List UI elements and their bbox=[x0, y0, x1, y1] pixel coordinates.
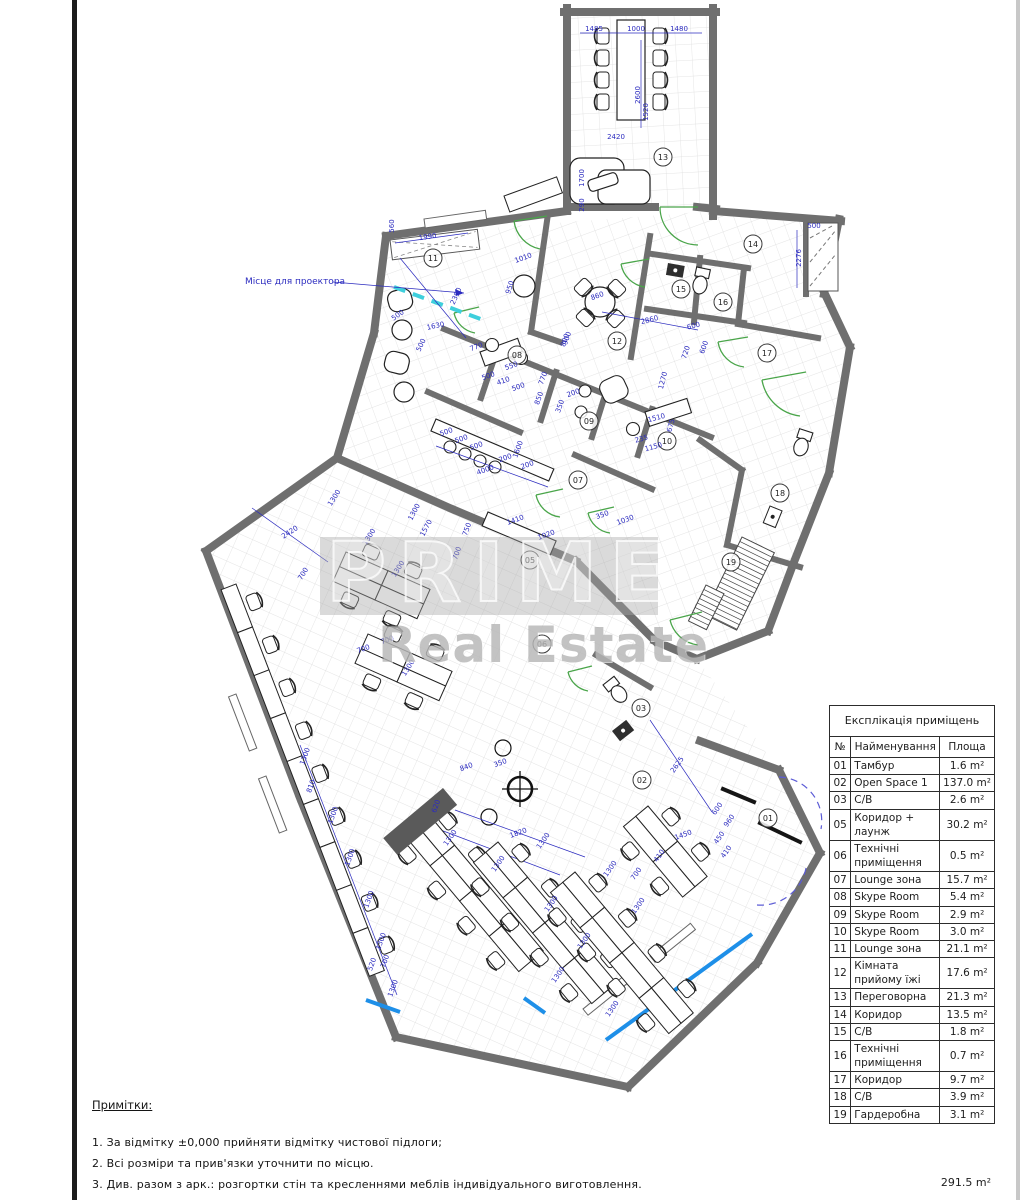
svg-text:08: 08 bbox=[512, 351, 522, 360]
cell-area: 15.7 m² bbox=[940, 872, 995, 889]
cell-no: 10 bbox=[830, 923, 851, 940]
svg-text:18: 18 bbox=[775, 489, 785, 498]
svg-text:11: 11 bbox=[428, 254, 438, 263]
shaft-hatch bbox=[808, 223, 838, 291]
dimension-label: 1480 bbox=[670, 25, 688, 33]
room-number-bubble: 12 bbox=[608, 332, 626, 350]
svg-text:02: 02 bbox=[637, 776, 647, 785]
svg-text:05: 05 bbox=[525, 556, 535, 565]
table-row: 10Skype Room3.0 m² bbox=[830, 923, 995, 940]
cell-area: 1.6 m² bbox=[940, 758, 995, 775]
cell-area: 21.1 m² bbox=[940, 940, 995, 957]
legend-header-no: № bbox=[830, 737, 851, 758]
room-number-bubble: 03 bbox=[632, 699, 650, 717]
table-row: 13Переговорна21.3 m² bbox=[830, 989, 995, 1006]
cell-no: 07 bbox=[830, 872, 851, 889]
room-number-bubble: 17 bbox=[758, 344, 776, 362]
dimension-label: 2600 bbox=[634, 86, 642, 104]
cell-area: 0.7 m² bbox=[940, 1040, 995, 1071]
table-row: 19Гардеробна3.1 m² bbox=[830, 1106, 995, 1123]
cell-name: Lounge зона bbox=[851, 872, 940, 889]
cell-no: 15 bbox=[830, 1023, 851, 1040]
svg-text:09: 09 bbox=[584, 417, 594, 426]
cell-no: 11 bbox=[830, 940, 851, 957]
room-number-bubble: 16 bbox=[714, 293, 732, 311]
svg-text:16: 16 bbox=[718, 298, 728, 307]
legend-header-area: Площа bbox=[940, 737, 995, 758]
cell-no: 17 bbox=[830, 1072, 851, 1089]
cell-area: 13.5 m² bbox=[940, 1006, 995, 1023]
dimension-label: 290 bbox=[578, 198, 586, 211]
notes-title: Примітки: bbox=[92, 1098, 652, 1112]
dimension-label: 2420 bbox=[607, 133, 625, 141]
table-row: 14Коридор13.5 m² bbox=[830, 1006, 995, 1023]
cell-area: 3.1 m² bbox=[940, 1106, 995, 1123]
table-row: 16Технічні приміщення0.7 m² bbox=[830, 1040, 995, 1071]
cell-name: С/В bbox=[851, 1023, 940, 1040]
table-row: 11Lounge зона21.1 m² bbox=[830, 940, 995, 957]
cell-no: 01 bbox=[830, 758, 851, 775]
cell-no: 09 bbox=[830, 906, 851, 923]
cell-no: 18 bbox=[830, 1089, 851, 1106]
svg-text:13: 13 bbox=[658, 153, 668, 162]
dimension-label: 500 bbox=[807, 222, 820, 230]
svg-text:19: 19 bbox=[726, 558, 736, 567]
cell-area: 9.7 m² bbox=[940, 1072, 995, 1089]
cell-name: Гардеробна bbox=[851, 1106, 940, 1123]
table-row: 12Кімната прийому їжі17.6 m² bbox=[830, 958, 995, 989]
cell-area: 3.0 m² bbox=[940, 923, 995, 940]
table-row: 01Тамбур1.6 m² bbox=[830, 758, 995, 775]
notes-block: Примітки: 1. За відмітку ±0,000 прийняти… bbox=[92, 1098, 652, 1199]
cell-no: 13 bbox=[830, 989, 851, 1006]
cell-name: С/В bbox=[851, 1089, 940, 1106]
room-legend-table: Експлікація приміщень № Найменування Пло… bbox=[829, 705, 995, 1124]
cell-name: Коридор bbox=[851, 1072, 940, 1089]
table-row: 07Lounge зона15.7 m² bbox=[830, 872, 995, 889]
cell-name: Переговорна bbox=[851, 989, 940, 1006]
note-item: 1. За відмітку ±0,000 прийняти відмітку … bbox=[92, 1136, 652, 1149]
legend-title: Експлікація приміщень bbox=[830, 706, 995, 737]
svg-text:17: 17 bbox=[762, 349, 772, 358]
cell-area: 3.9 m² bbox=[940, 1089, 995, 1106]
room-number-bubble: 01 bbox=[759, 809, 777, 827]
cell-area: 0.5 m² bbox=[940, 840, 995, 871]
cell-name: Коридор bbox=[851, 1006, 940, 1023]
cell-name: Open Space 1 bbox=[851, 775, 940, 792]
cell-no: 05 bbox=[830, 809, 851, 840]
room-number-bubble: 18 bbox=[771, 484, 789, 502]
dimension-label: 560 bbox=[388, 219, 396, 232]
room-number-bubble: 09 bbox=[580, 412, 598, 430]
cell-name: Skype Room bbox=[851, 906, 940, 923]
table-row: 15С/В1.8 m² bbox=[830, 1023, 995, 1040]
cell-name: Skype Room bbox=[851, 923, 940, 940]
svg-text:14: 14 bbox=[748, 240, 758, 249]
note-item: 3. Див. разом з арк.: розгортки стін та … bbox=[92, 1178, 652, 1191]
cell-name: С/В bbox=[851, 792, 940, 809]
room-number-bubble: 14 bbox=[744, 235, 762, 253]
room-number-bubble: 07 bbox=[569, 471, 587, 489]
cell-area: 2.6 m² bbox=[940, 792, 995, 809]
room-number-bubble: 13 bbox=[654, 148, 672, 166]
cell-no: 08 bbox=[830, 889, 851, 906]
svg-text:07: 07 bbox=[573, 476, 583, 485]
projector-label: Місце для проектора bbox=[245, 277, 345, 287]
cell-no: 12 bbox=[830, 958, 851, 989]
cell-no: 03 bbox=[830, 792, 851, 809]
cell-area: 5.4 m² bbox=[940, 889, 995, 906]
cell-area: 137.0 m² bbox=[940, 775, 995, 792]
table-row: 08Skype Room5.4 m² bbox=[830, 889, 995, 906]
svg-text:10: 10 bbox=[662, 437, 672, 446]
cell-name: Тамбур bbox=[851, 758, 940, 775]
cell-name: Коридор + лаунж bbox=[851, 809, 940, 840]
room-number-bubble: 15 bbox=[672, 280, 690, 298]
table-row: 09Skype Room2.9 m² bbox=[830, 906, 995, 923]
cell-name: Skype Room bbox=[851, 889, 940, 906]
svg-text:01: 01 bbox=[763, 814, 773, 823]
cell-name: Технічні приміщення bbox=[851, 1040, 940, 1071]
dimension-label: 2276 bbox=[795, 249, 803, 267]
svg-text:12: 12 bbox=[612, 337, 622, 346]
cell-area: 17.6 m² bbox=[940, 958, 995, 989]
total-area: 291.5 m² bbox=[829, 1176, 991, 1189]
cell-no: 14 bbox=[830, 1006, 851, 1023]
cell-area: 21.3 m² bbox=[940, 989, 995, 1006]
cell-name: Кімната прийому їжі bbox=[851, 958, 940, 989]
cell-area: 30.2 m² bbox=[940, 809, 995, 840]
room-number-bubble: 02 bbox=[633, 771, 651, 789]
legend-header-name: Найменування bbox=[851, 737, 940, 758]
cell-no: 02 bbox=[830, 775, 851, 792]
table-row: 03С/В2.6 m² bbox=[830, 792, 995, 809]
svg-text:06: 06 bbox=[537, 640, 547, 649]
room-number-bubble: 06 bbox=[533, 635, 551, 653]
cell-area: 1.8 m² bbox=[940, 1023, 995, 1040]
drawing-sheet: Місце для проектора 01020305060708091011… bbox=[0, 0, 1023, 1200]
dimension-label: 1000 bbox=[627, 25, 645, 33]
svg-text:15: 15 bbox=[676, 285, 686, 294]
dimension-label: 1520 bbox=[642, 103, 650, 121]
table-row: 17Коридор9.7 m² bbox=[830, 1072, 995, 1089]
cell-area: 2.9 m² bbox=[940, 906, 995, 923]
table-row: 18С/В3.9 m² bbox=[830, 1089, 995, 1106]
table-row: 02Open Space 1137.0 m² bbox=[830, 775, 995, 792]
dimension-label: 1485 bbox=[585, 25, 603, 33]
cell-no: 19 bbox=[830, 1106, 851, 1123]
svg-text:03: 03 bbox=[636, 704, 646, 713]
room-number-bubble: 05 bbox=[521, 551, 539, 569]
table-row: 05Коридор + лаунж30.2 m² bbox=[830, 809, 995, 840]
room-number-bubble: 19 bbox=[722, 553, 740, 571]
dimension-label: 1700 bbox=[578, 169, 586, 187]
table-row: 06Технічні приміщення0.5 m² bbox=[830, 840, 995, 871]
cell-no: 16 bbox=[830, 1040, 851, 1071]
room-number-bubble: 11 bbox=[424, 249, 442, 267]
note-item: 2. Всі розміри та прив'язки уточнити по … bbox=[92, 1157, 652, 1170]
cell-no: 06 bbox=[830, 840, 851, 871]
cell-name: Технічні приміщення bbox=[851, 840, 940, 871]
cell-name: Lounge зона bbox=[851, 940, 940, 957]
